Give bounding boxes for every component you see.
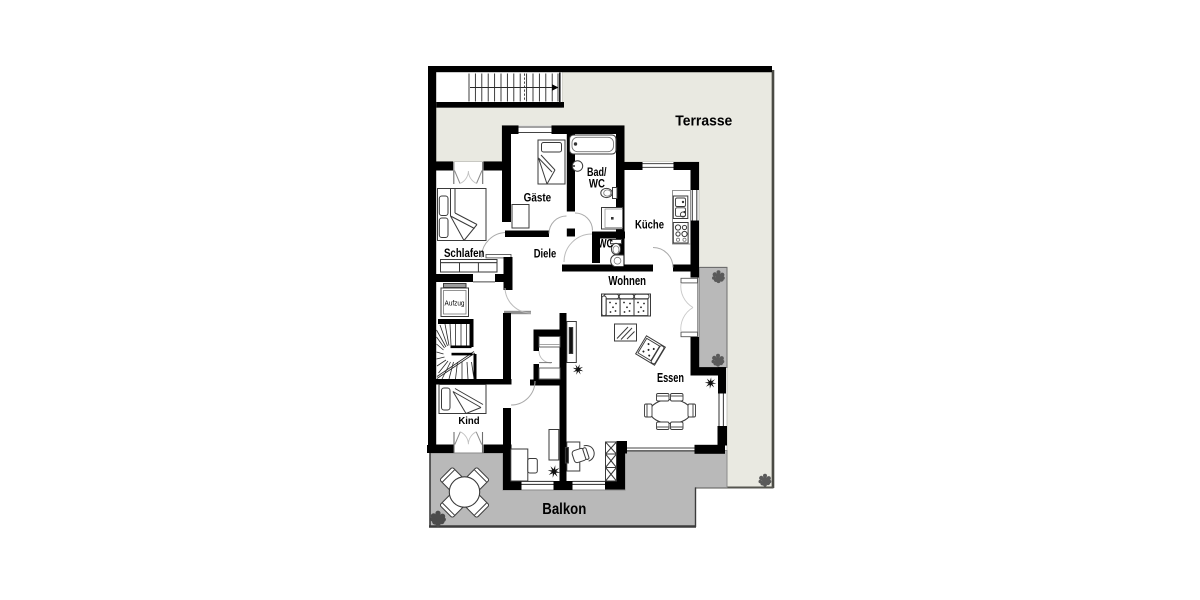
svg-text:Balkon: Balkon (542, 501, 586, 518)
svg-text:Kind: Kind (458, 415, 479, 427)
svg-text:WC: WC (598, 236, 613, 250)
svg-text:Terrasse: Terrasse (675, 114, 732, 130)
svg-text:Schlafen: Schlafen (444, 246, 485, 260)
svg-text:Wohnen: Wohnen (608, 274, 646, 288)
svg-text:Aufzug: Aufzug (445, 301, 465, 308)
svg-text:WC: WC (589, 177, 605, 191)
svg-text:Küche: Küche (635, 218, 664, 232)
svg-text:Essen: Essen (657, 371, 684, 385)
svg-text:Gäste: Gäste (524, 191, 552, 205)
svg-text:Diele: Diele (534, 246, 557, 260)
